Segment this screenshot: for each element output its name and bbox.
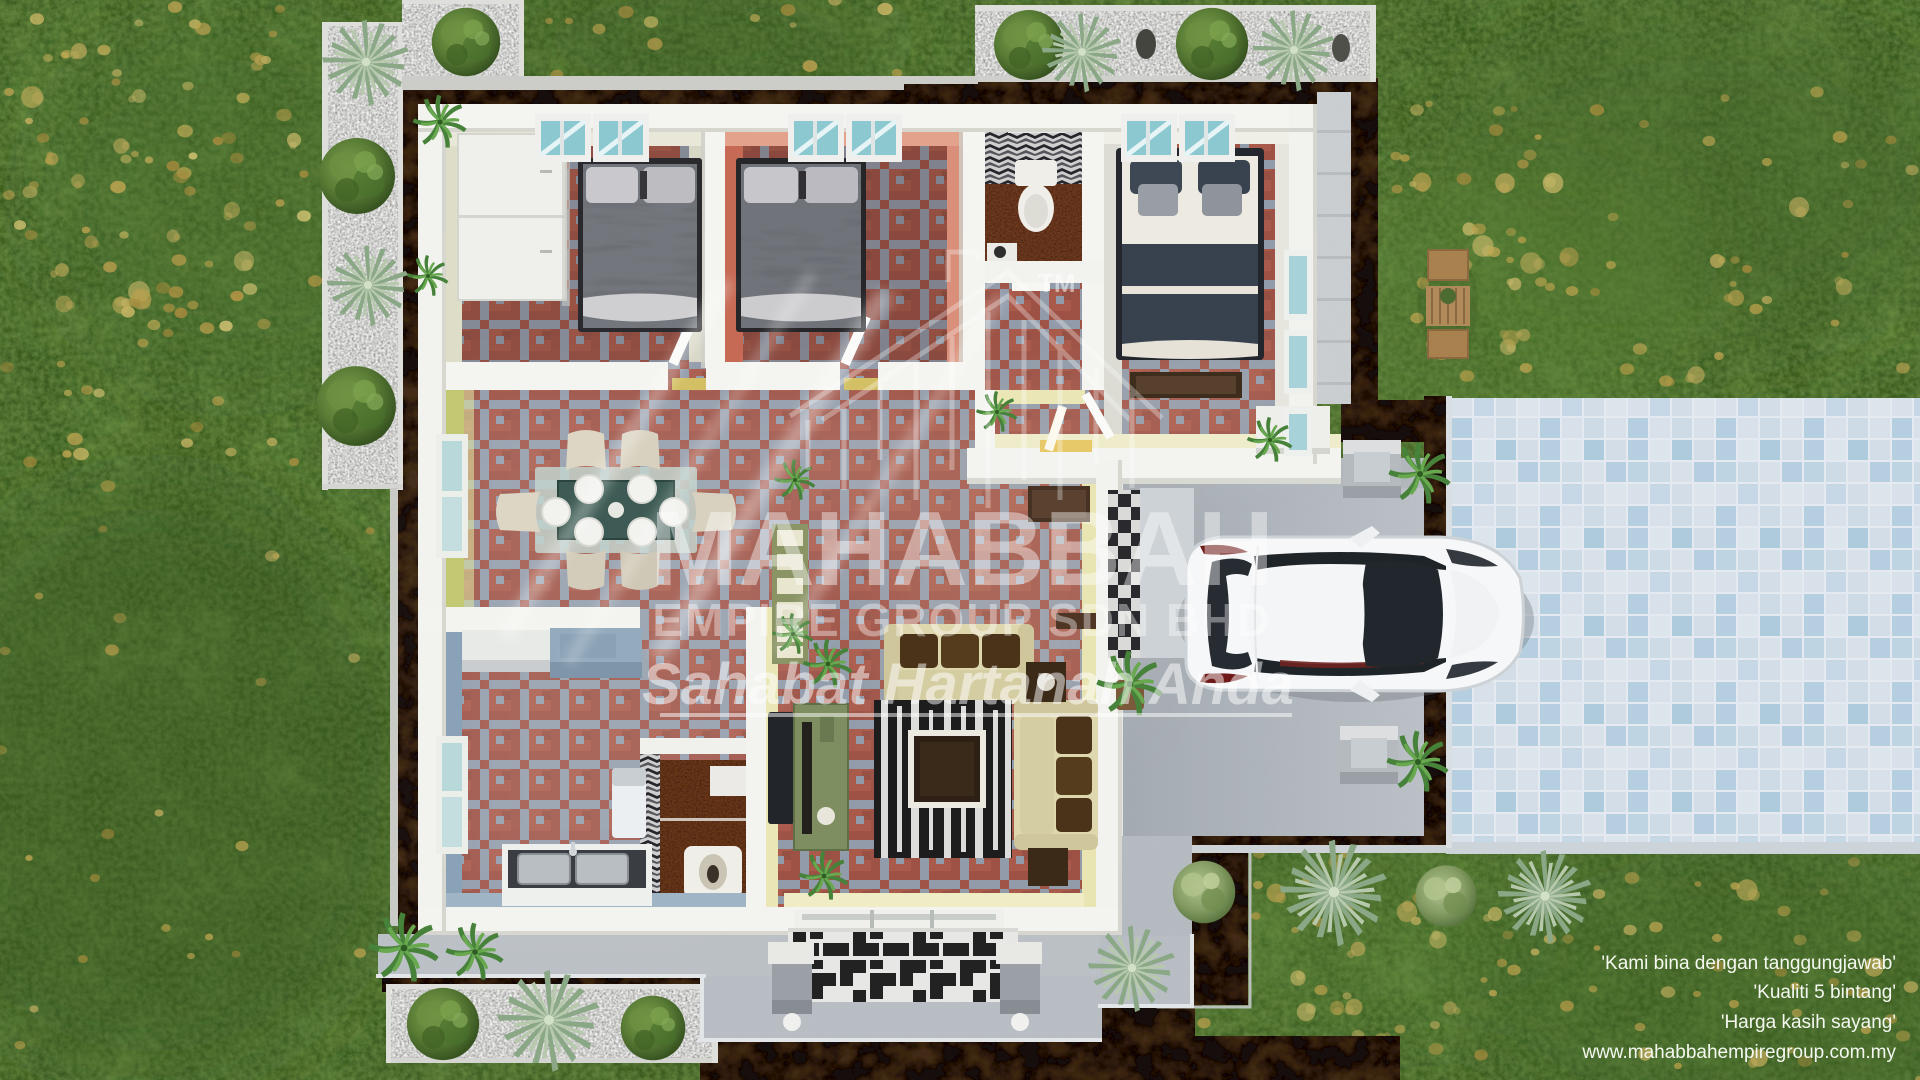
svg-text:MAHABBAH: MAHABBAH <box>650 490 1274 608</box>
svg-text:'Harga kasih sayang': 'Harga kasih sayang' <box>1721 1012 1896 1033</box>
svg-text:TM: TM <box>1038 268 1076 298</box>
svg-text:www.mahabbahempiregroup.com.my: www.mahabbahempiregroup.com.my <box>1581 1042 1896 1063</box>
svg-text:'Kami bina dengan tanggungjawa: 'Kami bina dengan tanggungjawab' <box>1601 953 1896 974</box>
svg-text:'Kualiti 5 bintang': 'Kualiti 5 bintang' <box>1754 982 1896 1003</box>
svg-text:EMPIRE GROUP SDN BHD: EMPIRE GROUP SDN BHD <box>652 594 1271 646</box>
svg-text:Sahabat Hartanah Anda: Sahabat Hartanah Anda <box>642 652 1294 717</box>
